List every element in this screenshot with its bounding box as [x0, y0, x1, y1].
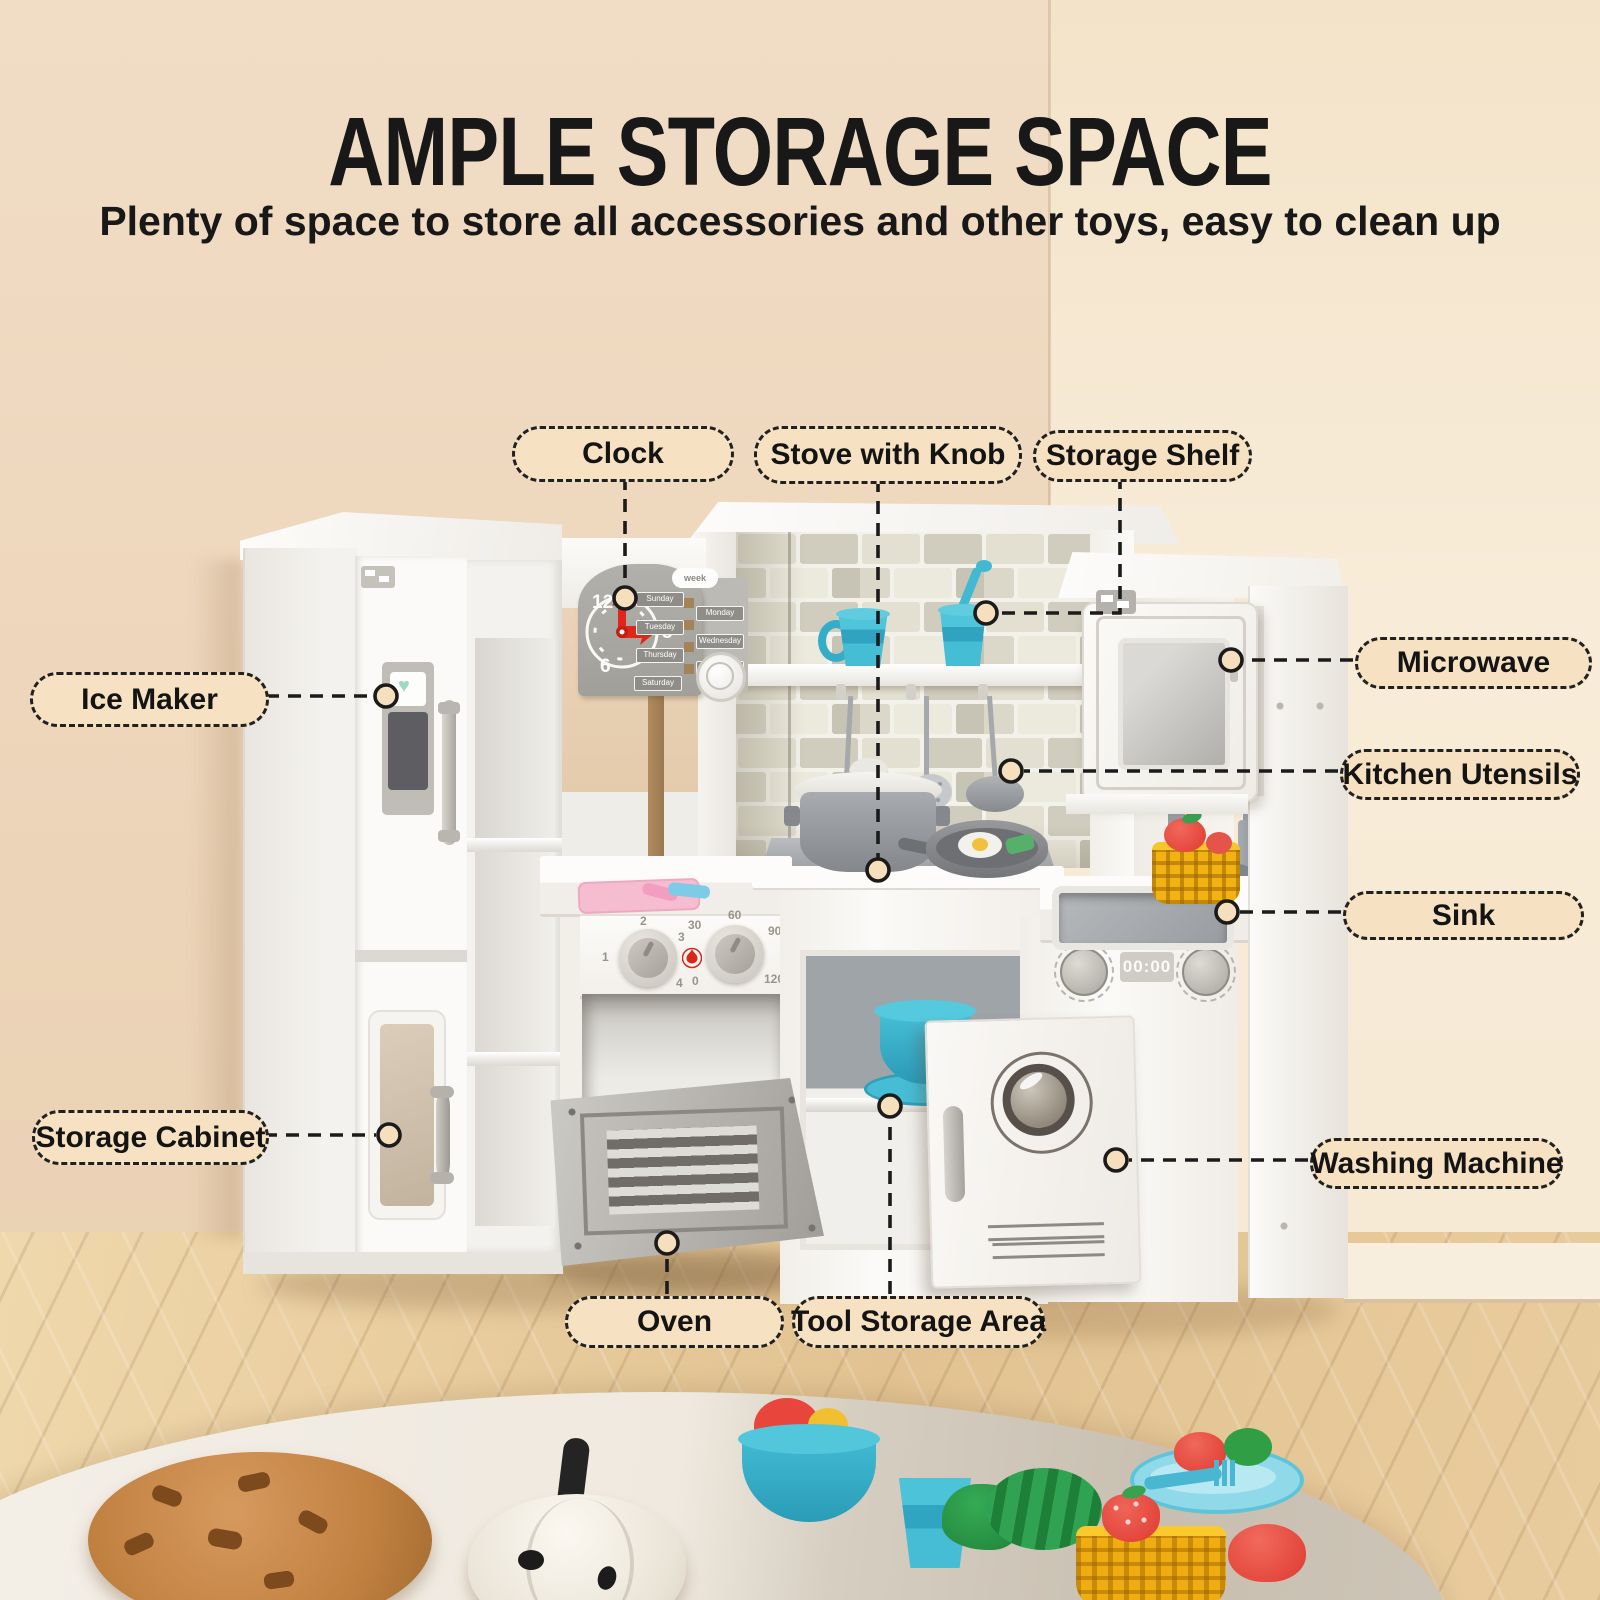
leader-dot-sink — [1216, 901, 1238, 923]
leader-dot-microwave — [1220, 649, 1242, 671]
leader-dot-storage-cabinet — [378, 1124, 400, 1146]
leader-dot-clock — [614, 587, 636, 609]
leader-dot-ice-maker — [375, 685, 397, 707]
callout-sink-label: Sink — [1432, 899, 1495, 933]
callout-stove: Stove with Knob — [754, 426, 1022, 484]
leader-dot-washing-machine — [1105, 1149, 1127, 1171]
product-infographic: ♥ 12 3 6 — [0, 0, 1600, 1600]
callout-storage-shelf: Storage Shelf — [1033, 430, 1252, 482]
leader-storage-shelf — [999, 476, 1120, 613]
callout-tool-storage: Tool Storage Area — [792, 1296, 1045, 1348]
callout-washing-machine-label: Washing Machine — [1310, 1147, 1562, 1181]
callout-oven: Oven — [565, 1296, 784, 1348]
page-subtitle: Plenty of space to store all accessories… — [0, 198, 1600, 245]
leader-dot-tool-storage — [879, 1095, 901, 1117]
callout-storage-cabinet: Storage Cabinet — [32, 1110, 269, 1165]
callout-microwave: Microwave — [1355, 637, 1592, 689]
leader-dot-oven — [656, 1232, 678, 1254]
page-title: AMPLE STORAGE SPACE — [160, 96, 1440, 208]
callout-microwave-label: Microwave — [1397, 646, 1550, 680]
callout-sink: Sink — [1343, 891, 1584, 940]
callout-washing-machine: Washing Machine — [1310, 1138, 1563, 1189]
callout-ice-maker-label: Ice Maker — [81, 683, 218, 717]
callout-clock: Clock — [512, 426, 734, 482]
callout-ice-maker: Ice Maker — [30, 672, 269, 727]
callout-stove-label: Stove with Knob — [771, 438, 1006, 472]
leader-dot-kitchen-utensils — [1000, 760, 1022, 782]
callout-kitchen-utensils: Kitchen Utensils — [1340, 749, 1580, 800]
callout-kitchen-utensils-label: Kitchen Utensils — [1342, 758, 1577, 792]
callout-tool-storage-label: Tool Storage Area — [791, 1305, 1046, 1339]
callout-storage-shelf-label: Storage Shelf — [1046, 439, 1239, 473]
callout-clock-label: Clock — [582, 437, 664, 471]
leader-dot-storage-shelf — [975, 602, 997, 624]
callout-oven-label: Oven — [637, 1305, 712, 1339]
leader-dot-stove — [867, 859, 889, 881]
callout-storage-cabinet-label: Storage Cabinet — [35, 1121, 265, 1155]
